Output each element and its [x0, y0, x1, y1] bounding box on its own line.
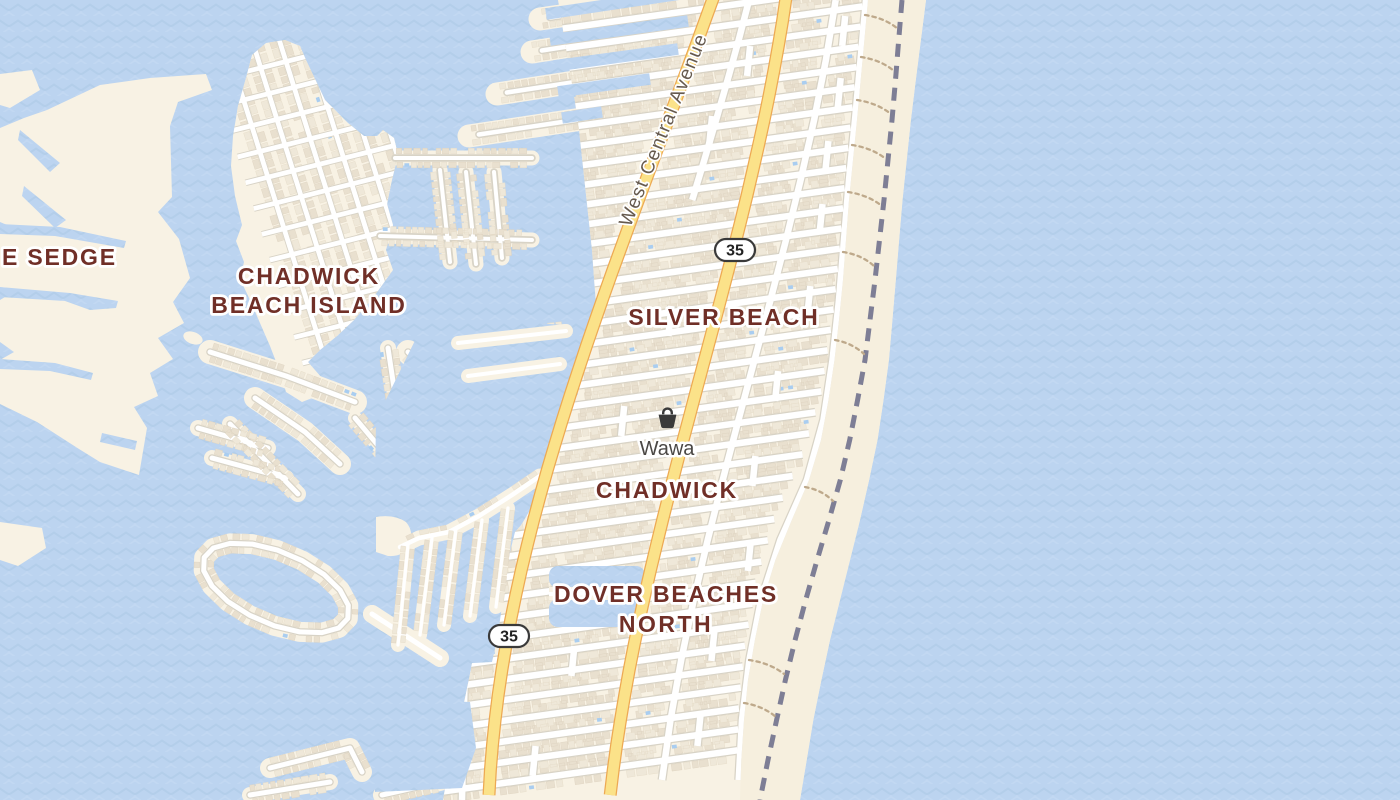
svg-text:35: 35 [500, 629, 518, 646]
svg-text:35: 35 [726, 243, 744, 260]
svg-text:DOVER BEACHES: DOVER BEACHES [554, 581, 778, 607]
svg-text:CHADWICK: CHADWICK [238, 263, 380, 289]
svg-text:NORTH: NORTH [619, 611, 713, 637]
svg-text:CHADWICK: CHADWICK [596, 477, 738, 503]
svg-text:SILVER BEACH: SILVER BEACH [628, 304, 819, 330]
svg-text:BEACH ISLAND: BEACH ISLAND [211, 292, 406, 318]
svg-text:E SEDGE: E SEDGE [2, 244, 117, 270]
svg-text:Wawa: Wawa [640, 438, 696, 460]
